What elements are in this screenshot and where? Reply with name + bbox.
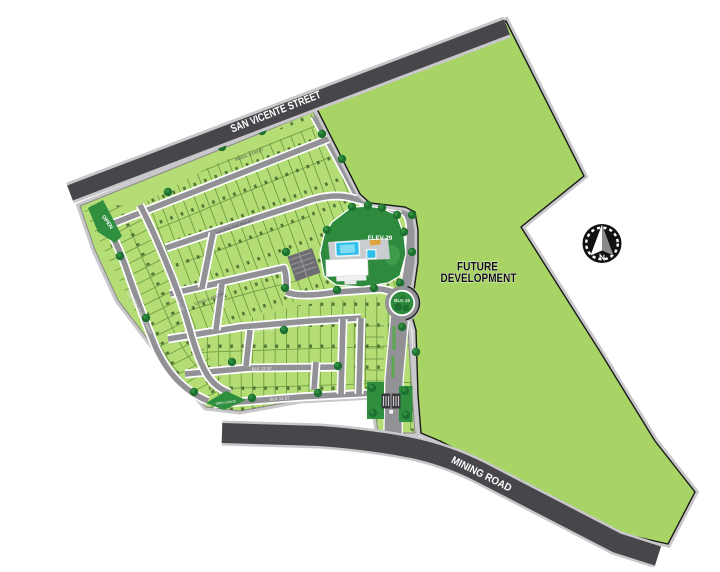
svg-text:BLK 16: BLK 16 xyxy=(394,298,410,303)
svg-text:FUTURE: FUTURE xyxy=(457,261,498,273)
svg-text:BLK 12 ST: BLK 12 ST xyxy=(252,366,273,372)
svg-text:DEVELOPMENT: DEVELOPMENT xyxy=(441,273,517,285)
svg-text:ELEV 29: ELEV 29 xyxy=(368,235,393,242)
